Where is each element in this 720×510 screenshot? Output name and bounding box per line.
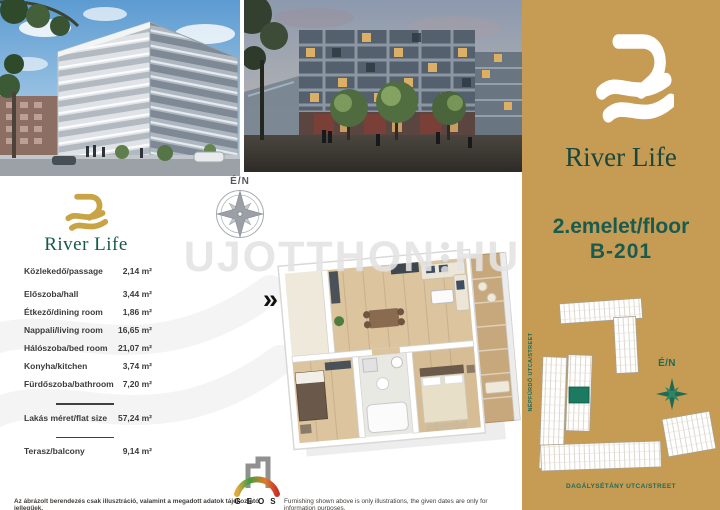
- table-row: Étkező/dining room 1,86 m²: [24, 307, 152, 325]
- table-row: Hálószoba/bed room 21,07 m²: [24, 343, 152, 361]
- compass-north-label: É/N: [218, 176, 262, 187]
- table-divider: [56, 403, 114, 405]
- street-label-nepfurdo: NÉPFÜRDŐ UTCA/STREET: [528, 312, 534, 432]
- street-label-dagalysetany: DAGÁLYSÉTÁNY UTCA/STREET: [526, 483, 716, 490]
- area-table: Közlekedő/passage 2,14 m² Előszoba/hall …: [24, 262, 152, 464]
- floorplan-3d: [272, 242, 529, 462]
- sidebar-wordmark: River Life: [522, 142, 720, 173]
- compass-rose-icon: [212, 188, 268, 240]
- table-row: Előszoba/hall 3,44 m²: [24, 289, 152, 307]
- highlighted-unit: [569, 387, 589, 403]
- river-life-logo-white-icon: [592, 28, 674, 132]
- disclaimer-english: Furnishing shown above is only illustrat…: [284, 498, 520, 510]
- chevron-right-icon: »: [263, 284, 278, 315]
- table-divider: [56, 437, 114, 439]
- table-balcony-row: Terasz/balcony 9,14 m²: [24, 446, 152, 464]
- table-total-row: Lakás méret/flat size 57,24 m²: [24, 413, 152, 431]
- table-row: Közlekedő/passage 2,14 m²: [24, 266, 152, 284]
- river-life-wordmark: River Life: [30, 234, 142, 256]
- rendering-photo-day: [0, 0, 240, 176]
- sidebar: River Life 2.emelet/floor B-201: [522, 0, 720, 510]
- rendering-photo-dusk: [244, 0, 522, 172]
- table-row: Konyha/kitchen 3,74 m²: [24, 361, 152, 379]
- site-plan-compass-icon: [656, 378, 688, 410]
- floor-label: 2.emelet/floor: [522, 215, 720, 239]
- table-row: Fürdőszoba/bathroom 7,20 m²: [24, 379, 152, 397]
- site-plan: [527, 297, 717, 479]
- geos-logo-icon: [230, 454, 284, 498]
- unit-label: B-201: [522, 240, 720, 264]
- disclaimer-hungarian: Az ábrázolt berendezés csak illusztráció…: [14, 498, 264, 510]
- site-plan-north-label: É/N: [645, 358, 689, 369]
- river-life-logo-icon: [62, 191, 108, 235]
- geos-wordmark: GEOS: [228, 497, 288, 506]
- table-row: Nappali/living room 16,65 m²: [24, 325, 152, 343]
- flyer-page: É/N River Life Közlekedő/passage 2,14 m²…: [0, 0, 720, 510]
